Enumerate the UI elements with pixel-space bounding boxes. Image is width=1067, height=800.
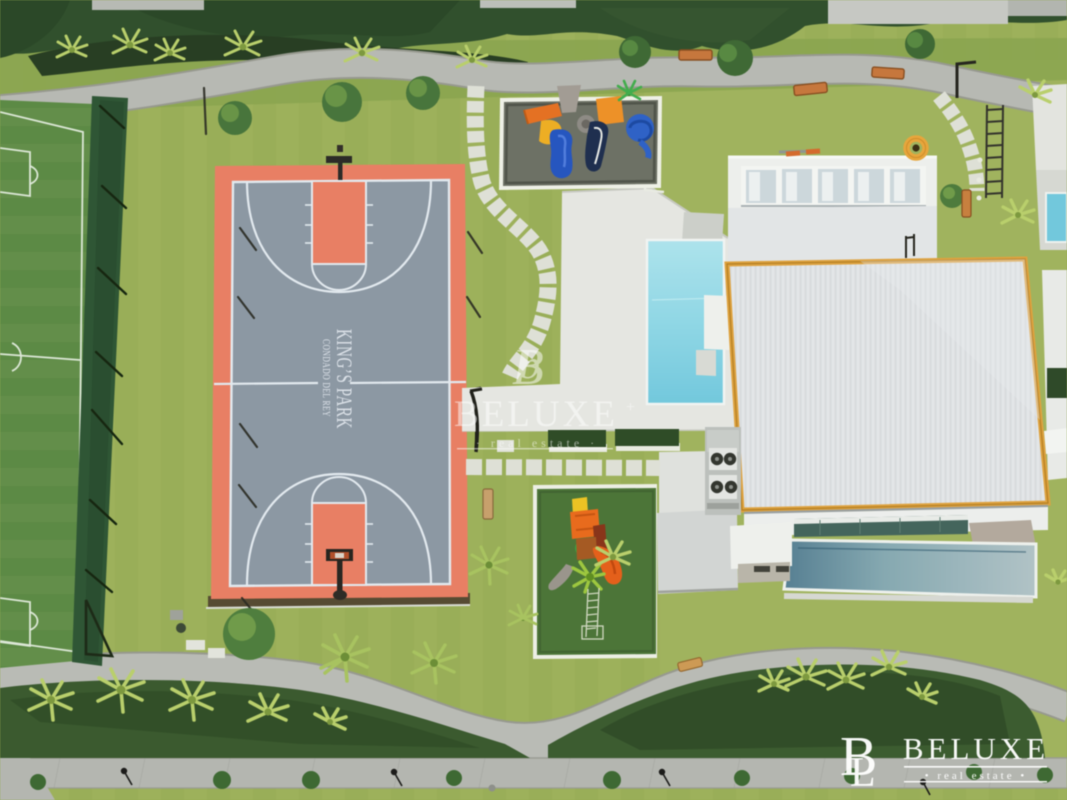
svg-text:+: + <box>626 399 635 416</box>
svg-text:b: b <box>520 342 540 387</box>
svg-text:KING’S PARK: KING’S PARK <box>332 329 357 429</box>
svg-text:• real estate •: • real estate • <box>925 770 1027 782</box>
svg-text:CONDADO DEL REY: CONDADO DEL REY <box>320 339 331 417</box>
svg-text:BELUXE: BELUXE <box>454 394 618 435</box>
svg-text:L: L <box>850 750 876 796</box>
svg-text:BELUXE: BELUXE <box>903 731 1049 766</box>
svg-text:· real estate ·: · real estate · <box>476 436 598 450</box>
